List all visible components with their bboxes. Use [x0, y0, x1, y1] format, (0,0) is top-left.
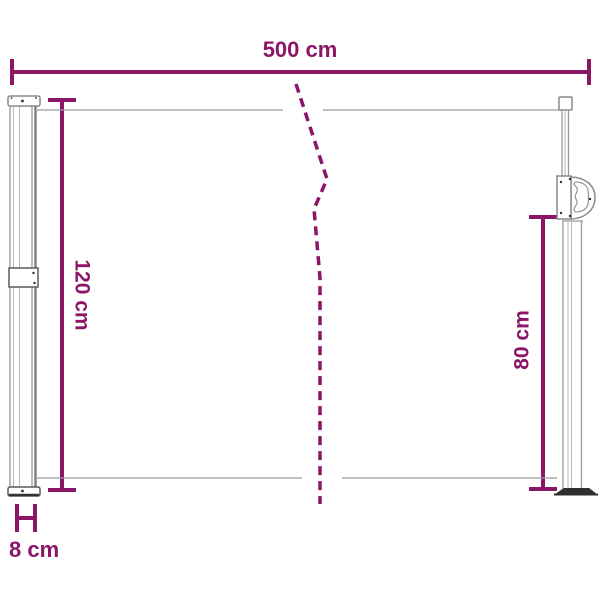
- screw-dot: [569, 215, 571, 217]
- right-support-post: [554, 97, 598, 495]
- handle-grip-cutout: [574, 182, 588, 212]
- post-top-cap: [559, 97, 572, 110]
- left-height-dimension: 120 cm: [48, 100, 94, 490]
- screw-dot: [569, 178, 571, 180]
- left-height-dimension-label: 120 cm: [71, 259, 94, 330]
- fabric-break-line: [296, 84, 327, 504]
- screw-dot: [21, 100, 24, 103]
- screw-dot: [35, 97, 37, 99]
- post-handle: [557, 176, 595, 219]
- fabric-edges: [37, 110, 561, 478]
- awning-dimension-diagram: 500 cm 120 cm 80 cm 8 cm: [0, 0, 600, 600]
- right-height-dimension: 80 cm: [511, 217, 558, 489]
- depth-dimension: 8 cm: [9, 504, 59, 562]
- cassette-top-cap: [8, 96, 40, 106]
- handle-plate: [557, 176, 571, 219]
- screw-dot: [32, 272, 34, 274]
- right-height-dimension-label: 80 cm: [511, 310, 534, 370]
- diagram-canvas: 500 cm 120 cm 80 cm 8 cm: [0, 0, 600, 600]
- width-dimension: 500 cm: [12, 37, 589, 85]
- screw-dot: [560, 212, 562, 214]
- screw-dot: [21, 490, 24, 493]
- left-cassette-post: [8, 96, 40, 496]
- screw-dot: [11, 97, 13, 99]
- post-base-plate: [556, 489, 596, 495]
- cassette-connector: [9, 268, 38, 287]
- depth-dimension-label: 8 cm: [9, 537, 59, 562]
- width-dimension-label: 500 cm: [263, 37, 338, 62]
- screw-dot: [33, 282, 35, 284]
- screw-dot: [560, 181, 562, 183]
- screw-dot: [589, 198, 591, 200]
